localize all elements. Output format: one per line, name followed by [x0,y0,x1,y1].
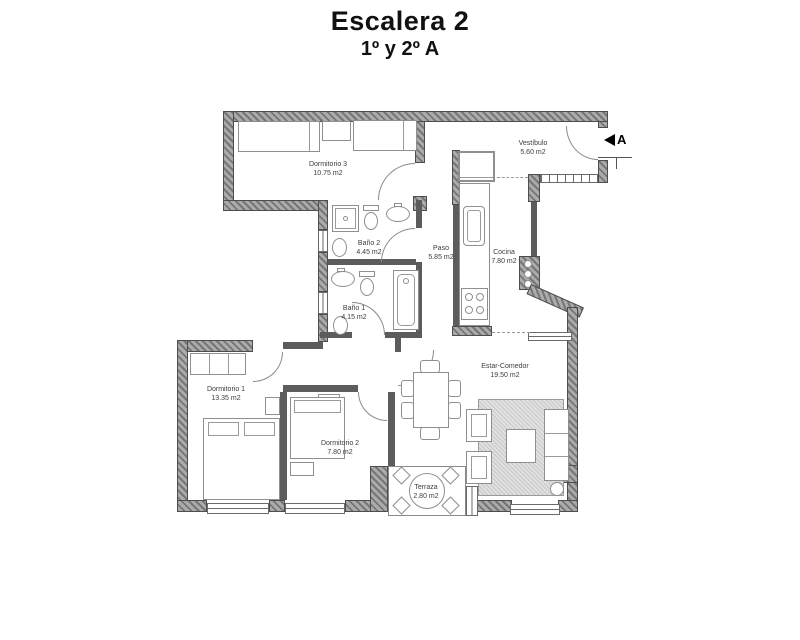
wall-dormitorio3-bottom [223,200,323,211]
room-area: 5.85 m2 [421,253,461,262]
wall-bath-left-b [318,252,328,292]
kitchen-sink [463,206,485,246]
sofa-cushion-line [545,456,568,457]
wall-entrance-lower [598,160,608,183]
armchair [466,451,492,484]
sofa [544,409,569,481]
wall-kitchen-counter-cap [452,326,492,336]
room-name: Vestíbulo [503,139,563,148]
wall-dormitorio1-bottom-cap [177,500,207,512]
wall-dormitorio2-bottom-cap [345,500,373,512]
vestibule-partition-window [540,174,598,183]
wall-dormitorio3-left [223,111,234,211]
wall-estar-entry-jamb [395,338,401,352]
bathtub-bano1 [393,270,419,330]
wall-estar-bottom-corner [558,500,578,512]
burner-icon [465,306,473,314]
armchair [466,409,492,442]
entrance-door-arc [566,126,598,160]
wall-bath-right-upper [416,200,422,228]
entrance-arrow-icon [604,134,615,146]
room-label-dormitorio3: Dormitorio 3 10.75 m2 [283,160,373,178]
window-estar-terraza [466,486,478,516]
room-area: 7.80 m2 [478,257,530,266]
window-dormitorio1 [207,503,269,514]
dining-chair [448,380,461,397]
fridge-line [460,177,493,178]
burner-icon [465,293,473,301]
floorplan-page: Escalera 2 1º y 2º A A [0,0,800,640]
dining-chair [401,380,414,397]
fridge-cocina [458,151,495,182]
sofa-cushion-line [545,433,568,434]
bed-pillow-line [403,121,404,150]
room-label-paso: Paso 5.85 m2 [421,244,461,262]
dormitorio3-door-arc [378,163,415,200]
entrance-marker-line [598,157,632,158]
wardrobe-dormitorio1 [190,353,246,375]
room-name: Terraza [396,483,456,492]
room-area: 2.80 m2 [396,492,456,501]
side-table-dormitorio2 [290,462,314,476]
appliance-knob-icon [524,270,532,278]
wall-hall-top [283,342,323,349]
wall-dormitorio2-right [388,392,395,466]
dormitorio2-door-arc [358,392,387,421]
room-name: Dormitorio 2 [295,439,385,448]
kitchen-sink-basin [467,210,481,242]
room-area: 19.50 m2 [460,371,550,380]
room-label-cocina: Cocina 7.80 m2 [478,248,530,266]
wardrobe-line [228,354,229,374]
burner-icon [476,306,484,314]
room-name: Baño 2 [339,239,399,248]
room-area: 5.60 m2 [503,148,563,157]
window-estar-bottom [510,504,560,515]
wall-bath-left-a [318,200,328,230]
nightstand-dormitorio3 [322,121,351,141]
wall-terraza-left [370,466,388,512]
coffee-table [506,429,536,463]
room-area: 4.45 m2 [339,248,399,257]
wall-dormitorio2-top [283,385,358,392]
kitchen-stove [461,288,488,320]
room-area: 13.35 m2 [181,394,271,403]
floorplan-drawing: A [0,0,800,640]
sink-bano1 [331,271,355,287]
bed-pillow-line [309,122,310,151]
wall-dormitorio1-top [177,340,253,352]
toilet-tank-bano1 [359,271,375,277]
room-name: Dormitorio 1 [181,385,271,394]
entrance-marker-tick [616,157,617,169]
room-label-estar: Estar-Comedor 19.50 m2 [460,362,550,380]
wall-dorm1-dorm2-partition [280,392,287,500]
window-estar-top [528,332,572,341]
side-table-round [550,482,564,496]
dining-chair [401,402,414,419]
dining-table [413,372,449,428]
dining-chair [448,402,461,419]
room-name: Paso [421,244,461,253]
room-area: 10.75 m2 [283,169,373,178]
toilet-bano1 [360,278,374,296]
room-area: 7.80 m2 [295,448,385,457]
wall-vestibule-post [528,174,540,202]
toilet-bano2 [364,212,378,230]
pillow [294,400,341,413]
armchair-seat [471,456,487,479]
room-label-dormitorio2: Dormitorio 2 7.80 m2 [295,439,385,457]
room-label-bano2: Baño 2 4.45 m2 [339,239,399,257]
bed-dormitorio3-b [353,120,417,151]
bed-dormitorio1 [203,418,280,500]
pillow [244,422,275,436]
dormitorio1-door-arc [253,352,283,382]
room-area: 4.15 m2 [324,313,384,322]
bed-dormitorio3-a [238,121,320,152]
wall-entrance-upper [598,121,608,128]
room-name: Cocina [478,248,530,257]
window-dormitorio2 [285,503,345,514]
dining-chair [420,427,440,440]
pillow [208,422,239,436]
wall-dormitorio1-left [177,340,188,512]
wall-kitchen-right [531,202,537,258]
dining-chair [420,360,440,373]
armchair-seat [471,414,487,437]
toilet-tank-bano2 [363,205,379,211]
room-label-terraza: Terraza 2.80 m2 [396,483,456,501]
shower-bano2 [332,205,359,232]
wall-bottom-mid [269,500,285,512]
room-label-vestibulo: Vestíbulo 5.60 m2 [503,139,563,157]
wall-bath-bottom-right [385,332,422,338]
opening-kitchen-estar [492,332,530,333]
opening-vestibule-kitchen [497,177,528,178]
entrance-marker-label: A [617,132,626,147]
burner-icon [476,293,484,301]
sink-bano2 [386,206,410,222]
room-name: Baño 1 [324,304,384,313]
bathtub-drain-icon [403,278,409,284]
room-label-bano1: Baño 1 4.15 m2 [324,304,384,322]
room-name: Estar-Comedor [460,362,550,371]
sink-tap-bano2 [394,203,402,207]
sink-tap-bano1 [337,268,345,272]
wardrobe-line [209,354,210,374]
window-bath-left-upper [318,230,328,252]
room-label-dormitorio1: Dormitorio 1 13.35 m2 [181,385,271,403]
shower-drain-icon [343,216,348,221]
room-name: Dormitorio 3 [283,160,373,169]
